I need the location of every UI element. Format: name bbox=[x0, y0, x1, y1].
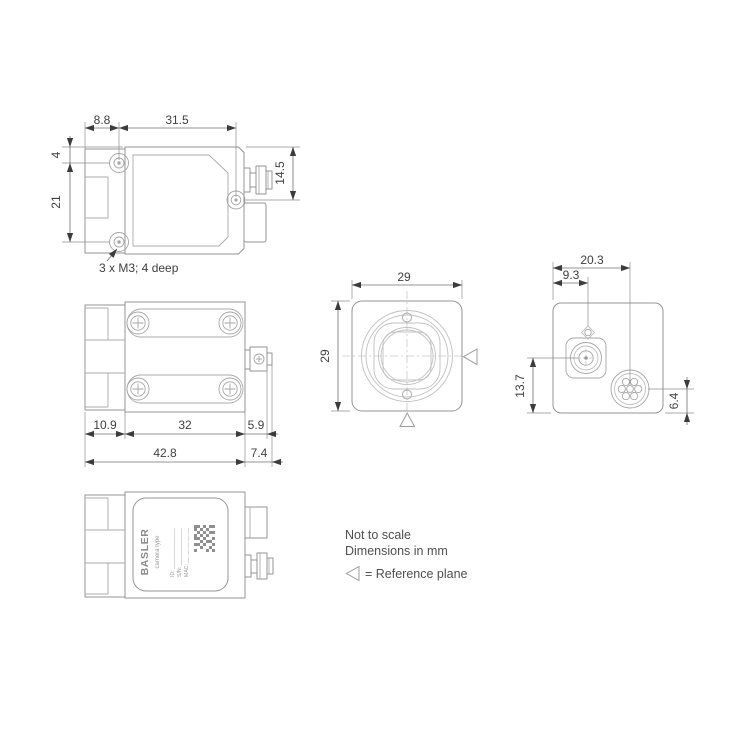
note-not-to-scale: Not to scale bbox=[345, 528, 411, 542]
lens-front-block bbox=[85, 305, 125, 410]
id-field: ID: ______________ bbox=[170, 528, 176, 577]
dimension-29-height: 29 bbox=[318, 349, 332, 363]
dimension-20-3: 20.3 bbox=[580, 253, 604, 267]
phillips-screw-icon bbox=[219, 378, 241, 400]
dimension-8-8: 8.8 bbox=[94, 113, 111, 127]
thread-callout-leader bbox=[107, 249, 117, 261]
phillips-screw-icon bbox=[219, 312, 241, 334]
camera-housing-outline bbox=[125, 147, 244, 254]
reference-plane-symbol bbox=[347, 567, 360, 581]
rear-block-profile bbox=[244, 203, 266, 242]
dimension-10-9: 10.9 bbox=[93, 418, 117, 432]
mac-address-field: MAC: __ __ __ __ __ bbox=[184, 528, 190, 577]
dimension-32: 32 bbox=[178, 418, 192, 432]
dimension-42-8: 42.8 bbox=[153, 446, 177, 460]
note-dimensions-unit: Dimensions in mm bbox=[345, 544, 448, 558]
front-block-steps bbox=[85, 308, 125, 407]
dimension-4: 4 bbox=[49, 151, 63, 158]
side-view-dimensions: 10.9 32 5.9 42.8 7.4 bbox=[85, 365, 283, 467]
dimension-9-3: 9.3 bbox=[563, 268, 580, 282]
dimension-31-5: 31.5 bbox=[165, 113, 189, 127]
camera-type-text: camera type bbox=[155, 535, 161, 569]
dimension-21: 21 bbox=[49, 195, 63, 209]
brand-text: BASLER bbox=[139, 529, 151, 576]
phillips-screw-icon bbox=[127, 378, 149, 400]
dimension-13-7: 13.7 bbox=[513, 374, 527, 398]
lens-front-block bbox=[85, 495, 125, 597]
dimension-14-5: 14.5 bbox=[273, 161, 287, 185]
front-block-steps bbox=[85, 498, 125, 594]
dimension-7-4: 7.4 bbox=[251, 446, 268, 460]
dimension-6-4: 6.4 bbox=[667, 392, 681, 409]
back-view-dimensions: 20.3 9.3 13.7 6.4 bbox=[513, 253, 694, 425]
front-view: 29 29 bbox=[318, 270, 477, 427]
technical-drawing: 8.8 31.5 4 21 14.5 3 x M3; 4 deep bbox=[0, 0, 750, 750]
product-label: BASLER camera type ID: ______________ S/… bbox=[133, 498, 228, 591]
reference-plane-symbol bbox=[464, 349, 478, 365]
note-reference-plane: = Reference plane bbox=[365, 567, 468, 581]
dimension-29-width: 29 bbox=[397, 270, 411, 284]
front-block-notch bbox=[85, 177, 108, 218]
rear-block-profile bbox=[245, 507, 267, 538]
io-connector-side-profile bbox=[244, 166, 272, 194]
dimension-5-9: 5.9 bbox=[248, 418, 265, 432]
reference-plane-symbol bbox=[400, 413, 415, 427]
io-connector-side-profile bbox=[245, 347, 272, 371]
top-view: 8.8 31.5 4 21 14.5 3 x M3; 4 deep bbox=[49, 113, 300, 275]
io-connector-side-profile bbox=[245, 553, 273, 579]
front-view-dimensions: 29 29 bbox=[318, 270, 462, 411]
thread-callout: 3 x M3; 4 deep bbox=[99, 261, 179, 275]
mounting-screw-icon bbox=[110, 233, 129, 252]
phillips-screw-icon bbox=[127, 312, 149, 334]
side-view: 10.9 32 5.9 42.8 7.4 bbox=[85, 302, 283, 467]
bottom-view: BASLER camera type ID: ______________ S/… bbox=[85, 492, 273, 598]
back-view: 20.3 9.3 13.7 6.4 bbox=[513, 253, 694, 425]
serial-number-field: S/N: _____________ bbox=[177, 528, 183, 577]
notes: Not to scale Dimensions in mm = Referenc… bbox=[345, 528, 468, 581]
inner-cover-contour bbox=[133, 155, 228, 246]
led-indicator bbox=[582, 326, 595, 339]
qr-code-icon bbox=[194, 525, 215, 552]
